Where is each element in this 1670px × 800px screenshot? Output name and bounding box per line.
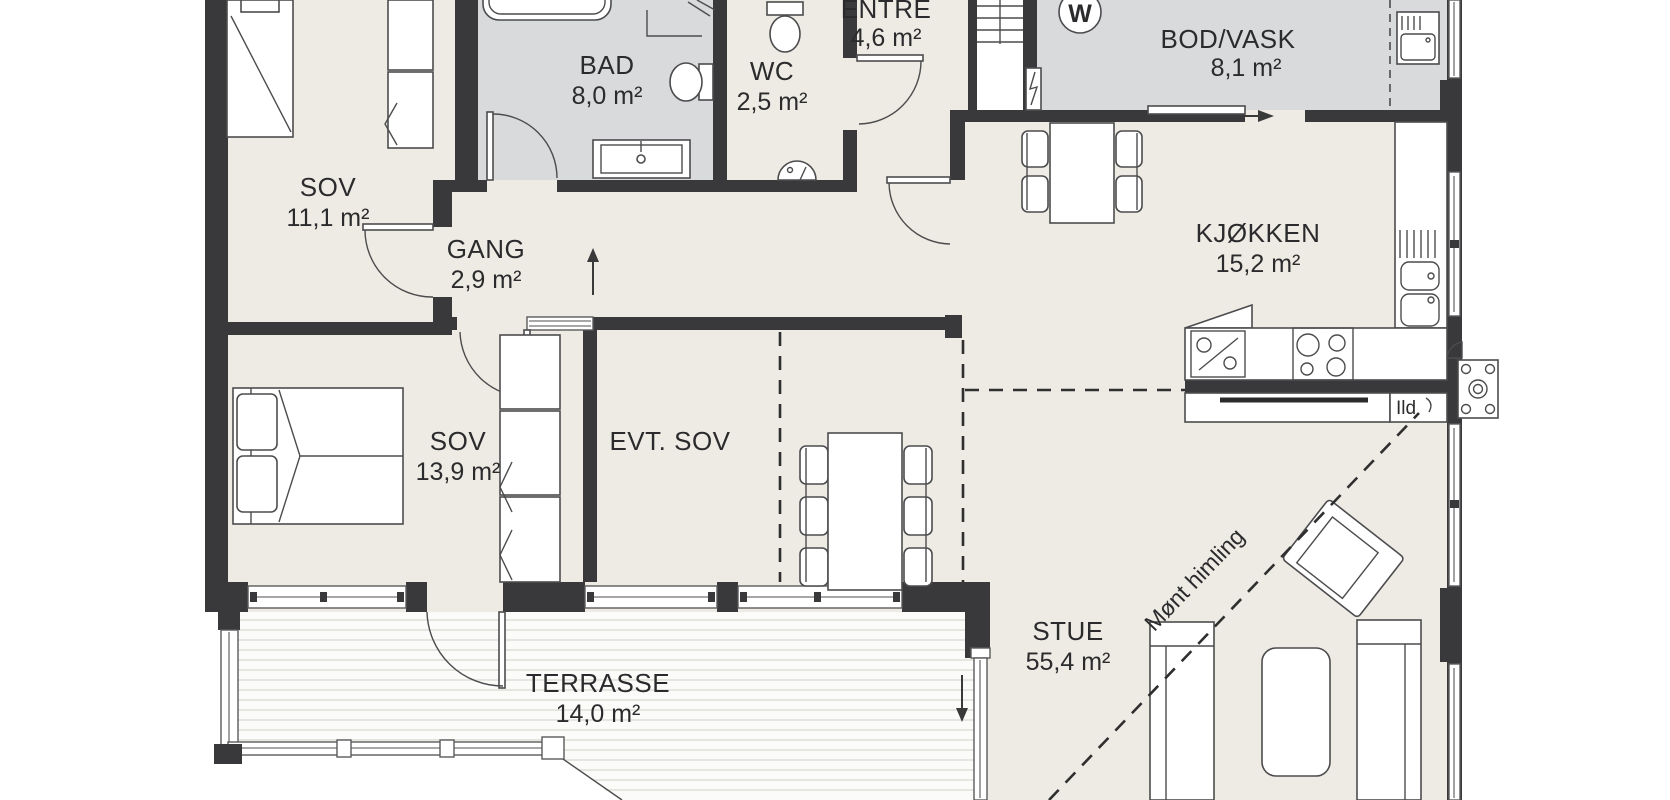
svg-text:15,2 m²: 15,2 m² [1216, 250, 1301, 278]
fireplace-box: Ild [1390, 393, 1447, 422]
floor-plan-drawing: W [0, 0, 1670, 800]
svg-text:ENTRE: ENTRE [841, 0, 932, 24]
svg-text:EVT. SOV: EVT. SOV [609, 426, 730, 456]
wall-stub [945, 315, 962, 338]
wardrobe-sov2-icon [500, 335, 560, 582]
wall-left [205, 0, 228, 612]
dining-table-6-icon [800, 433, 932, 590]
washing-machine-icon: W [1059, 0, 1101, 33]
wall-corner-block [965, 582, 990, 658]
fireplace-label: Ild [1396, 398, 1416, 419]
wall-kitchen-lower [1185, 380, 1447, 393]
svg-text:8,0 m²: 8,0 m² [572, 82, 643, 110]
single-bed-icon [227, 0, 293, 137]
svg-text:KJØKKEN: KJØKKEN [1196, 218, 1321, 248]
window-right-4 [1449, 664, 1460, 800]
sink-bad-icon [593, 140, 690, 178]
washer-label: W [1068, 0, 1092, 28]
svg-text:8,1 m²: 8,1 m² [1211, 54, 1282, 82]
toilet-wc-icon [767, 2, 803, 52]
bathtub-icon [483, 0, 611, 20]
sofa-right-icon [1357, 620, 1421, 800]
svg-text:WC: WC [750, 56, 794, 86]
window-bottom-2 [585, 586, 717, 608]
svg-text:13,9 m²: 13,9 m² [416, 458, 501, 486]
wall-sov1-sov2 [228, 322, 433, 335]
svg-text:4,6 m²: 4,6 m² [851, 24, 922, 52]
svg-text:BAD: BAD [580, 50, 635, 80]
svg-text:14,0 m²: 14,0 m² [556, 700, 641, 728]
window-right-1 [1449, 0, 1460, 78]
window-bottom-1 [248, 586, 406, 608]
svg-text:BOD/VASK: BOD/VASK [1160, 24, 1295, 54]
toilet-bad-icon [670, 63, 713, 101]
svg-text:2,5 m²: 2,5 m² [737, 88, 808, 116]
window-stue-terrace [971, 648, 990, 800]
coffee-table-icon [1262, 648, 1330, 776]
window-right-2 [1449, 172, 1460, 316]
svg-text:TERRASSE: TERRASSE [526, 668, 670, 698]
svg-text:SOV: SOV [430, 426, 487, 456]
label-entre: ENTRE 4,6 m² [841, 0, 932, 52]
svg-text:55,4 m²: 55,4 m² [1026, 648, 1111, 676]
wall-sov1-bad [455, 0, 478, 192]
wardrobe-sov1-icon [385, 0, 433, 148]
wall-evtsov-left [583, 330, 597, 582]
svg-text:GANG: GANG [447, 234, 526, 264]
double-bed-icon [233, 388, 403, 524]
label-evt-sov: EVT. SOV [609, 426, 730, 456]
svg-text:STUE: STUE [1032, 616, 1103, 646]
window-right-3 [1449, 424, 1460, 586]
svg-text:2,9 m²: 2,9 m² [451, 266, 522, 294]
svg-text:SOV: SOV [300, 172, 357, 202]
tv-bench-shelf [1185, 393, 1390, 422]
kitchen-counter-right [1395, 122, 1447, 328]
sofa-left-icon [1150, 622, 1214, 800]
floor-plan-page: W [0, 0, 1670, 800]
svg-text:11,1 m²: 11,1 m² [287, 204, 370, 232]
wall-bad-wc [713, 0, 727, 180]
laundry-sink-icon [1397, 12, 1439, 64]
window-gang-sliding [527, 317, 593, 330]
electrical-panel-icon [1026, 68, 1041, 110]
